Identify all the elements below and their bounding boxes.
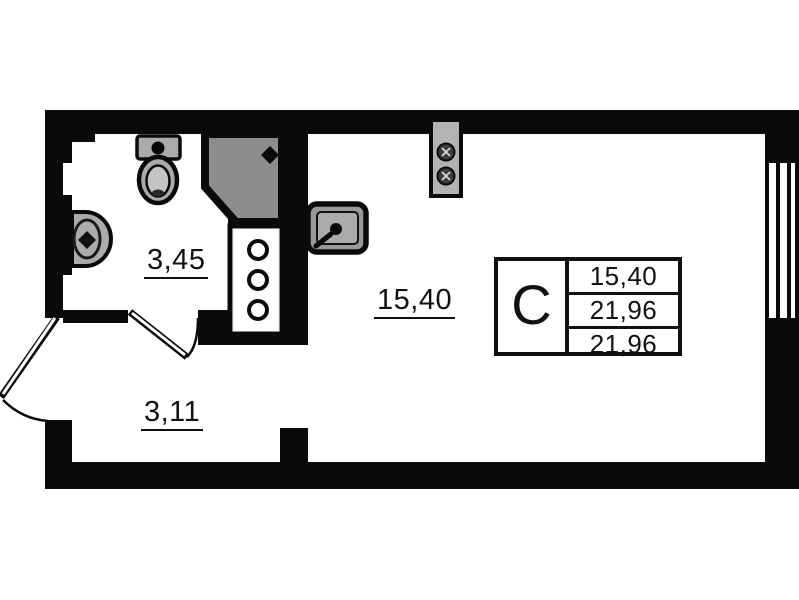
apartment-areas: 15,40 21,96 21,96 (569, 261, 678, 352)
riser-cabinet-icon (230, 226, 282, 334)
entrance-door-leaf-gap (3, 318, 55, 394)
window-icon (765, 163, 799, 318)
toilet-icon (137, 136, 180, 203)
entrance-door-arc (3, 400, 48, 421)
bathroom-area-label: 3,45 (144, 246, 208, 279)
hallway-area-label: 3,11 (141, 398, 203, 431)
wall-bottom (45, 462, 799, 489)
window-mullion (765, 163, 769, 318)
shower-tray-icon (205, 134, 282, 222)
apartment-info-table: С 15,40 21,96 21,96 (494, 257, 682, 356)
stove-icon (431, 120, 461, 196)
apartment-type-cell: С (498, 261, 569, 352)
wall-top (45, 110, 799, 134)
wall-left-basin-pad (45, 195, 72, 275)
living-area-value: 15,40 (569, 261, 678, 295)
window-mullion (795, 163, 799, 318)
kitchen-sink-icon (308, 204, 366, 252)
pipe (249, 301, 267, 319)
bathroom-door-arc (187, 318, 198, 357)
floor-plan: 3,45 3,11 15,40 С 15,40 21,96 21,96 (0, 0, 799, 600)
toilet-drain (152, 190, 164, 197)
wall-hall-stub (280, 428, 308, 464)
window-opening (765, 163, 799, 318)
wall-bathroom-bottom (63, 310, 128, 323)
window-mullion (776, 163, 780, 318)
window-mullion (787, 163, 791, 318)
pilaster-side (63, 134, 72, 163)
wash-basin-icon (72, 212, 111, 266)
total-area-value: 21,96 (569, 295, 678, 329)
toilet-button (152, 142, 165, 155)
living-area-label: 15,40 (374, 286, 455, 319)
bathroom-door-leaf-gap (132, 313, 185, 355)
pipe (249, 271, 267, 289)
reduced-total-area-value: 21,96 (569, 329, 678, 360)
pipe (249, 241, 267, 259)
bathroom-door-swing-icon (130, 312, 198, 357)
entrance-door-swing-icon (1, 317, 57, 421)
